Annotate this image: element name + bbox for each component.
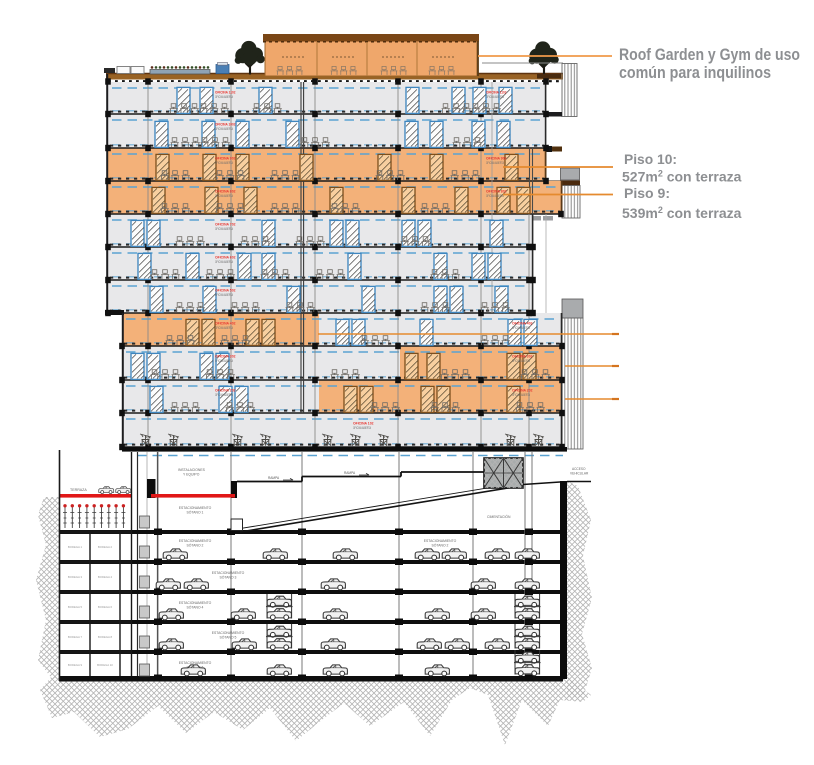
svg-text:VEHICULAR: VEHICULAR xyxy=(570,471,589,475)
svg-text:OFICINA ABIERTA: OFICINA ABIERTA xyxy=(512,359,531,363)
svg-text:Piso 10:: Piso 10: xyxy=(624,151,677,167)
svg-text:OFICINA ABIERTA: OFICINA ABIERTA xyxy=(215,127,234,131)
svg-text:BODEGA 7: BODEGA 7 xyxy=(68,635,83,639)
svg-text:OFICINA ABIERTA: OFICINA ABIERTA xyxy=(486,161,505,165)
svg-text:SÓTANO 2: SÓTANO 2 xyxy=(432,542,449,547)
svg-text:OFICINA 302: OFICINA 302 xyxy=(512,354,533,359)
svg-text:BODEGA 5: BODEGA 5 xyxy=(68,605,83,609)
svg-text:OFICINA ABIERTA: OFICINA ABIERTA xyxy=(215,326,234,330)
svg-text:OFICINA 202: OFICINA 202 xyxy=(512,388,533,393)
svg-text:OFICINA 902: OFICINA 902 xyxy=(486,156,507,161)
svg-text:BODEGA 3: BODEGA 3 xyxy=(68,575,83,579)
svg-text:RAMPA: RAMPA xyxy=(344,471,356,475)
svg-text:OFICINA ABIERTA: OFICINA ABIERTA xyxy=(215,393,234,397)
svg-text:OFICINA 802: OFICINA 802 xyxy=(486,189,507,194)
svg-text:OFICINA ABIERTA: OFICINA ABIERTA xyxy=(215,161,234,165)
svg-text:ESTACIONAMIENTO: ESTACIONAMIENTO xyxy=(179,506,212,510)
svg-text:OFICINA 402: OFICINA 402 xyxy=(512,321,533,326)
svg-text:BODEGA 8: BODEGA 8 xyxy=(98,635,113,639)
svg-text:TERRAZA: TERRAZA xyxy=(70,488,87,492)
svg-text:OFICINA ABIERTA: OFICINA ABIERTA xyxy=(512,393,531,397)
svg-text:SÓTANO 3: SÓTANO 3 xyxy=(220,574,237,579)
svg-text:OFICINA 602: OFICINA 602 xyxy=(215,255,236,260)
svg-text:BODEGA 10: BODEGA 10 xyxy=(97,663,113,667)
svg-text:CIMENTACIÓN: CIMENTACIÓN xyxy=(487,514,511,519)
svg-text:OFICINA 402: OFICINA 402 xyxy=(215,321,236,326)
svg-text:ACCESO: ACCESO xyxy=(572,467,586,471)
svg-text:SÓTANO 1: SÓTANO 1 xyxy=(187,509,204,514)
svg-text:OFICINA 802: OFICINA 802 xyxy=(215,189,236,194)
svg-text:Roof Garden y Gym de uso: Roof Garden y Gym de uso xyxy=(619,46,800,64)
svg-text:OFICINA 102: OFICINA 102 xyxy=(353,421,374,426)
svg-text:ESTACIONAMIENTO: ESTACIONAMIENTO xyxy=(212,631,245,635)
svg-text:BODEGA 1: BODEGA 1 xyxy=(68,545,83,549)
svg-text:OFICINA ABIERTA: OFICINA ABIERTA xyxy=(215,95,234,99)
svg-text:OFICINA 202: OFICINA 202 xyxy=(215,388,236,393)
svg-text:BODEGA 4: BODEGA 4 xyxy=(98,575,113,579)
svg-text:OFICINA 1002: OFICINA 1002 xyxy=(215,122,236,127)
svg-text:SÓTANO 4: SÓTANO 4 xyxy=(187,604,204,609)
svg-text:OFICINA ABIERTA: OFICINA ABIERTA xyxy=(215,293,234,297)
svg-text:BODEGA 6: BODEGA 6 xyxy=(98,605,113,609)
svg-text:OFICINA 1102: OFICINA 1102 xyxy=(215,90,236,95)
svg-text:ESTACIONAMIENTO: ESTACIONAMIENTO xyxy=(424,539,457,543)
svg-text:OFICINA 502: OFICINA 502 xyxy=(215,288,236,293)
svg-text:OFICINA ABIERTA: OFICINA ABIERTA xyxy=(486,194,505,198)
svg-text:527m2 con terraza: 527m2 con terraza xyxy=(622,169,742,185)
svg-text:RAMPA: RAMPA xyxy=(268,476,280,480)
svg-text:OFICINA ABIERTA: OFICINA ABIERTA xyxy=(512,326,531,330)
svg-text:común para inquilinos: común para inquilinos xyxy=(619,64,771,82)
svg-text:OFICINA 1102: OFICINA 1102 xyxy=(486,90,507,95)
svg-text:INSTALACIONES: INSTALACIONES xyxy=(178,468,206,472)
svg-text:ESTACIONAMIENTO: ESTACIONAMIENTO xyxy=(179,601,212,605)
svg-text:SÓTANO 2: SÓTANO 2 xyxy=(187,542,204,547)
svg-text:SÓTANO 5: SÓTANO 5 xyxy=(220,634,237,639)
svg-text:Piso 9:: Piso 9: xyxy=(624,185,670,201)
svg-text:OFICINA 902: OFICINA 902 xyxy=(215,156,236,161)
svg-text:OFICINA ABIERTA: OFICINA ABIERTA xyxy=(486,95,505,99)
svg-text:539m2 con terraza: 539m2 con terraza xyxy=(622,205,742,221)
svg-text:OFICINA ABIERTA: OFICINA ABIERTA xyxy=(215,227,234,231)
svg-text:BODEGA 2: BODEGA 2 xyxy=(98,545,113,549)
svg-text:OFICINA ABIERTA: OFICINA ABIERTA xyxy=(215,260,234,264)
svg-text:ESTACIONAMIENTO: ESTACIONAMIENTO xyxy=(179,539,212,543)
svg-text:OFICINA ABIERTA: OFICINA ABIERTA xyxy=(215,194,234,198)
svg-text:BODEGA 9: BODEGA 9 xyxy=(68,663,83,667)
svg-text:OFICINA 302: OFICINA 302 xyxy=(215,354,236,359)
svg-text:OFICINA 702: OFICINA 702 xyxy=(215,222,236,227)
svg-text:OFICINA ABIERTA: OFICINA ABIERTA xyxy=(353,426,372,430)
svg-text:OFICINA ABIERTA: OFICINA ABIERTA xyxy=(215,359,234,363)
svg-text:ESTACIONAMIENTO: ESTACIONAMIENTO xyxy=(212,571,245,575)
svg-text:Y EQUIPO: Y EQUIPO xyxy=(183,472,200,476)
